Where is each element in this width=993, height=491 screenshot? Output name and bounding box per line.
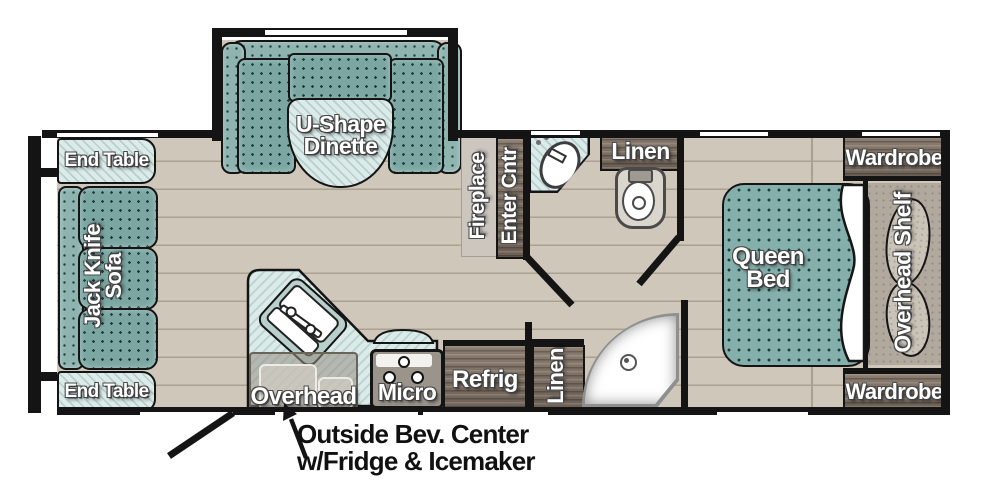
bath-wall-left <box>523 130 530 260</box>
slideout-flange <box>41 168 57 177</box>
shower-room-wall-left <box>525 322 532 412</box>
dinette-bench-right <box>388 58 444 174</box>
slideout-flange <box>41 372 57 381</box>
end-table-front-label: End Table <box>59 140 154 182</box>
floor-seam <box>811 137 813 184</box>
end-table-front: End Table <box>57 138 156 184</box>
slideout-wall-left <box>212 28 222 141</box>
sofa-slideout-wall <box>28 136 41 413</box>
slideout-wall-right <box>448 28 458 141</box>
window <box>531 131 580 135</box>
kitchen-overhead-cabinet: Overhead <box>249 352 358 415</box>
wardrobe-rear-label: Wardrobe <box>845 374 943 410</box>
window <box>423 412 548 416</box>
toilet <box>615 167 666 229</box>
bath-linen-label: Linen <box>602 135 679 169</box>
wardrobe-rear: Wardrobe <box>843 372 945 412</box>
dinette-table: U-Shape Dinette <box>287 98 394 188</box>
end-table-rear-label: End Table <box>59 373 154 411</box>
overhead-label: Overhead <box>251 354 356 413</box>
exterior-bev-center-door <box>275 412 418 416</box>
dinette-bench-back <box>288 53 392 102</box>
window <box>57 133 158 137</box>
entertainment-center-label: Enter Cntr <box>498 132 522 260</box>
shower-drain-dot <box>624 358 629 363</box>
refrig-label: Refrig <box>445 346 525 414</box>
overhead-shelf-label: Overhead Shelf <box>890 174 917 372</box>
fireplace-label: Fireplace <box>465 132 491 260</box>
window <box>717 412 808 416</box>
toilet-drain <box>632 196 646 210</box>
annotation-line1: Outside Bev. Center <box>297 421 597 448</box>
refrigerator: Refrig <box>443 340 527 416</box>
micro-label: Micro <box>373 352 441 406</box>
shower-room-wall-right <box>681 300 688 412</box>
queen-bed-label: Queen Bed <box>712 246 824 292</box>
window <box>140 412 233 416</box>
vanity-knob <box>536 140 541 145</box>
annotation-callout: Outside Bev. Center w/Fridge & Icemaker <box>297 421 597 474</box>
dinette-label: U-Shape Dinette <box>289 100 392 186</box>
kitchen-linen-label: Linen <box>544 341 568 411</box>
floor-seam <box>811 363 813 408</box>
bath-wall-right <box>677 130 684 241</box>
bath-linen-cabinet: Linen <box>600 133 681 171</box>
window <box>265 30 407 35</box>
microwave-range: Micro <box>370 349 444 409</box>
floorplan: U-Shape Dinette End Table Jack Knife Sof… <box>0 0 993 491</box>
annotation-line2: w/Fridge & Icemaker <box>297 448 597 475</box>
entry-door-swing <box>169 413 233 456</box>
window <box>862 132 940 136</box>
shower-drain <box>620 354 637 371</box>
window <box>700 132 768 136</box>
sofa-label: Jack Knife Sofa <box>76 216 132 336</box>
bed-platform-edge <box>863 178 868 372</box>
